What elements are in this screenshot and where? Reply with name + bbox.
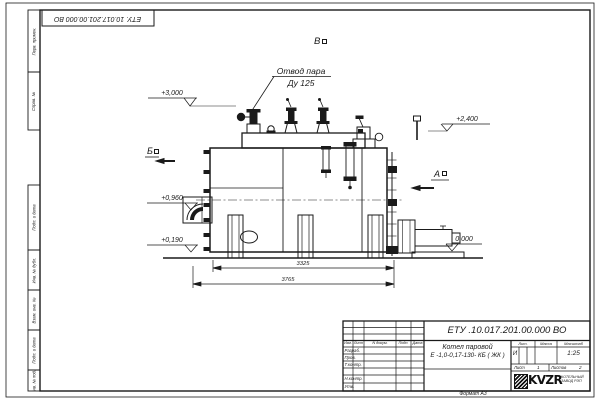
row-tkontr: Т.контр. — [345, 363, 362, 367]
water-gauge-1 — [321, 146, 331, 178]
format-note: Формат А3 — [438, 392, 508, 397]
elevation-plus-3000: +3,000 — [148, 90, 196, 97]
logo-kvzr: KVZR — [528, 373, 562, 387]
view-b-mark — [154, 149, 159, 154]
view-label-a: А — [434, 170, 447, 179]
row-nkontr: Н.контр. — [345, 377, 363, 381]
safety-valve-1 — [285, 98, 298, 133]
rear-pipe — [386, 152, 398, 256]
steam-outlet-callout-line1: Отвод пара — [270, 67, 332, 76]
drawing-linework — [0, 0, 600, 400]
logo-subtext: КОТЕЛЬНЫЙ ЗАВОД РЭП — [561, 375, 584, 384]
margin-col-perv-primen: Перв. примен. — [28, 10, 40, 72]
elevation-plus-2400: +2,400 — [444, 116, 490, 123]
margin-col-inv-podl: Инв. № подл. — [28, 370, 40, 391]
margin-col-podp-data-1: Подп. и дата — [28, 185, 40, 250]
view-label-b: Б — [147, 147, 159, 156]
sheet-label: Лист — [514, 366, 525, 370]
margin-col-inv-dubl: Инв. № дубл. — [28, 250, 40, 290]
col-header-izm: Изм. — [343, 342, 353, 346]
logo-subtext-line2: ЗАВОД РЭП — [561, 379, 584, 383]
drum-nozzle — [267, 126, 276, 133]
safety-valve-2 — [317, 98, 330, 133]
steam-outlet-valve — [237, 109, 261, 133]
elevation-zero: 0,000 — [446, 236, 482, 243]
lit-header: Лит. — [511, 342, 535, 346]
water-gauge-2 — [344, 142, 357, 189]
scale-header: Масштаб — [557, 342, 590, 346]
elevation-plus-0190: +0,190 — [147, 237, 197, 244]
vent-pipe — [414, 116, 421, 140]
sheet-value: 1 — [537, 366, 540, 371]
dimension-3765: 3765 — [273, 278, 303, 284]
elevation-plus-0960: +0,960 — [147, 195, 197, 202]
margin-col-podp-data-2: Подп. и дата — [28, 330, 40, 370]
col-header-data: Дата — [411, 342, 424, 346]
mass-header: Масса — [535, 342, 557, 346]
view-v-mark — [322, 39, 327, 44]
sheets-label: Листов — [551, 366, 566, 370]
col-header-list: Лист — [353, 342, 364, 346]
row-prov: Пров. — [345, 356, 356, 360]
row-utv: Утв. — [345, 385, 355, 389]
doc-ref-rotated: ЕТУ. 10.017.201.00.000 ВО — [42, 10, 154, 26]
title-name-line1: Котел паровой — [424, 344, 511, 351]
drawing-sheet: ЕТУ. 10.017.201.00.000 ВО Перв. примен. … — [0, 0, 600, 400]
view-label-v: В — [314, 37, 327, 47]
col-header-podp: Подп. — [396, 342, 411, 346]
logo-hatch-block — [514, 374, 528, 389]
row-razrab: Разраб. — [345, 349, 361, 353]
view-a-mark — [442, 171, 447, 176]
steam-outlet-callout-line2: Ду 125 — [270, 79, 332, 88]
scale-value: 1:25 — [557, 351, 590, 358]
title-doc-number: ЕТУ .10.017.201.00.000 ВО — [424, 326, 590, 336]
col-header-ndoc: N докум. — [364, 342, 396, 346]
lit-value: И — [511, 351, 519, 357]
dimension-3325: 3325 — [288, 262, 318, 268]
margin-col-vzam-inv: Взам. инв. № — [28, 290, 40, 330]
title-name-line2: Е -1,0-0,17-130- КБ ( ЖК ) — [424, 353, 511, 359]
sheets-value: 2 — [579, 366, 582, 371]
margin-col-sprav-no: Справ. № — [28, 72, 40, 130]
right-valve-cluster — [353, 116, 383, 149]
